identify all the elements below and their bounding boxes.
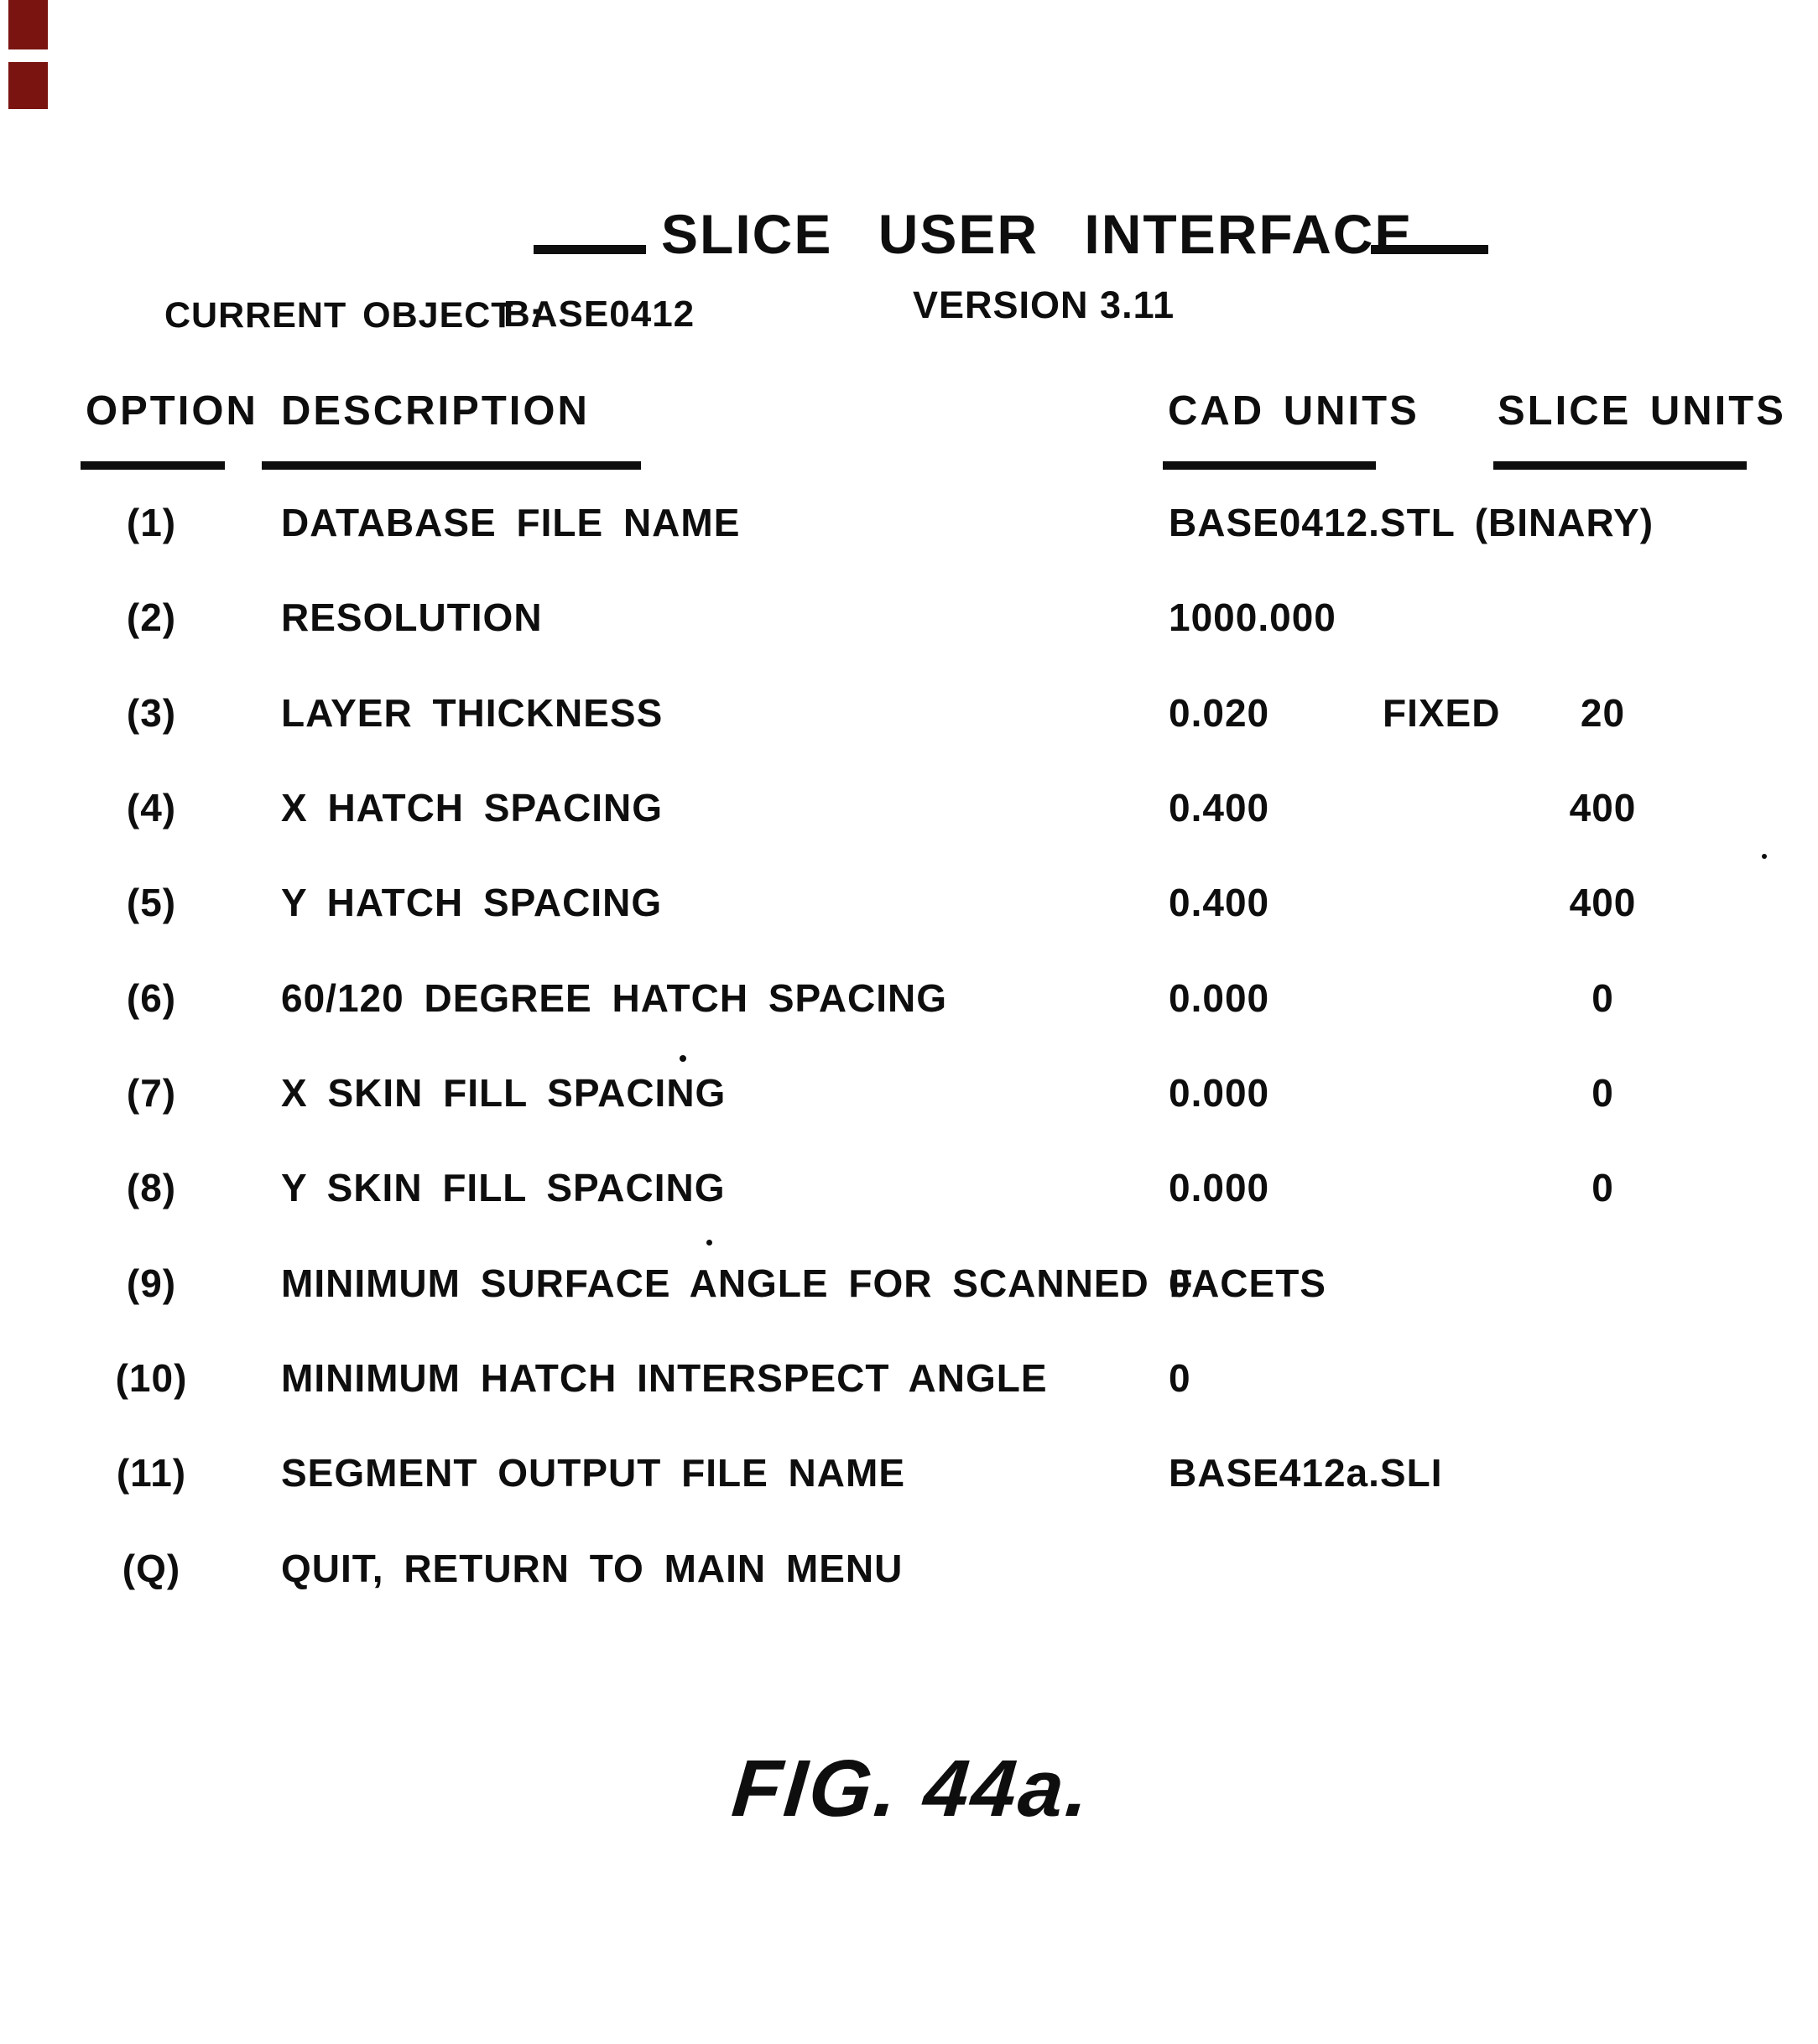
cad-units-value: 0.000 [1169,975,1269,1021]
option-key: (8) [82,1165,221,1210]
figure-caption: FIG. 44a. [728,1743,1095,1835]
page-title: SLICE USER INTERFACE [661,203,1413,267]
slice-units-value: 0 [1550,1165,1655,1210]
header-cad-units: CAD UNITS [1168,387,1419,434]
option-key: (11) [82,1450,221,1495]
cad-units-value: 0.000 [1169,1070,1269,1116]
option-description: X HATCH SPACING [281,785,663,830]
table-header-row: OPTION DESCRIPTION CAD UNITS SLICE UNITS [0,387,1818,446]
cad-units-value: 0 [1169,1355,1191,1401]
option-description: Y HATCH SPACING [281,880,662,925]
slice-units-value: 0 [1550,1070,1655,1116]
slice-units-value: 400 [1550,785,1655,830]
cad-units-value: 0 [1169,1261,1191,1306]
option-key: (Q) [82,1546,221,1591]
table-row: (2) RESOLUTION 1000.000 [0,595,1818,650]
slice-units-value: 400 [1550,880,1655,925]
option-description: QUIT, RETURN TO MAIN MENU [281,1546,903,1591]
table-row: (11) SEGMENT OUTPUT FILE NAME BASE412a.S… [0,1450,1818,1506]
header-underline-slice-units [1493,461,1747,470]
table-row: (Q) QUIT, RETURN TO MAIN MENU [0,1546,1818,1601]
option-description: 60/120 DEGREE HATCH SPACING [281,975,947,1021]
version-label: VERSION 3.11 [913,283,1175,327]
red-edge-mark-top [8,0,48,49]
header-underline-description [262,461,641,470]
scan-speck [680,1055,686,1062]
current-object-label: CURRENT OBJECT : [164,295,543,336]
header-slice-units: SLICE UNITS [1498,387,1786,434]
header-description: DESCRIPTION [281,387,590,434]
header-underline-cad-units [1163,461,1376,470]
option-description: MINIMUM HATCH INTERSPECT ANGLE [281,1355,1048,1401]
slice-units-value: 20 [1550,690,1655,736]
table-row: (6) 60/120 DEGREE HATCH SPACING 0.000 0 [0,975,1818,1031]
table-row: (3) LAYER THICKNESS 0.020 FIXED 20 [0,690,1818,746]
scan-speck [1762,854,1767,859]
patent-figure-page: SLICE USER INTERFACE VERSION 3.11 CURREN… [0,0,1818,2044]
option-description: RESOLUTION [281,595,543,640]
slice-units-value: 0 [1550,975,1655,1021]
red-edge-mark-bottom [8,62,48,109]
current-object-value: BASE0412 [503,294,695,336]
cad-units-value: 0.000 [1169,1165,1269,1210]
option-key: (7) [82,1070,221,1116]
table-row: (10) MINIMUM HATCH INTERSPECT ANGLE 0 [0,1355,1818,1411]
option-description: LAYER THICKNESS [281,690,663,736]
option-description: SEGMENT OUTPUT FILE NAME [281,1450,905,1495]
option-key: (3) [82,690,221,736]
cad-units-value: 0.400 [1169,785,1269,830]
scan-speck [706,1240,712,1246]
title-left-dash [534,245,646,254]
table-row: (9) MINIMUM SURFACE ANGLE FOR SCANNED FA… [0,1261,1818,1316]
option-key: (1) [82,500,221,545]
cad-units-value: 0.020 [1169,690,1269,736]
table-row: (1) DATABASE FILE NAME BASE0412.STL (BIN… [0,500,1818,555]
option-key: (10) [82,1355,221,1401]
table-row: (5) Y HATCH SPACING 0.400 400 [0,880,1818,935]
option-description: DATABASE FILE NAME [281,500,740,545]
option-key: (5) [82,880,221,925]
table-row: (4) X HATCH SPACING 0.400 400 [0,785,1818,840]
cad-units-value: BASE0412.STL (BINARY) [1169,500,1654,545]
cad-units-value: 0.400 [1169,880,1269,925]
option-key: (9) [82,1261,221,1306]
option-key: (6) [82,975,221,1021]
header-option: OPTION [86,387,258,434]
cad-units-value: BASE412a.SLI [1169,1450,1442,1495]
mid-flag-value: FIXED [1383,690,1500,736]
cad-units-value: 1000.000 [1169,595,1336,640]
table-row: (7) X SKIN FILL SPACING 0.000 0 [0,1070,1818,1126]
option-description: Y SKIN FILL SPACING [281,1165,726,1210]
table-row: (8) Y SKIN FILL SPACING 0.000 0 [0,1165,1818,1220]
option-description: X SKIN FILL SPACING [281,1070,726,1116]
option-key: (2) [82,595,221,640]
header-underline-option [81,461,225,470]
title-right-dash [1371,245,1488,254]
option-key: (4) [82,785,221,830]
